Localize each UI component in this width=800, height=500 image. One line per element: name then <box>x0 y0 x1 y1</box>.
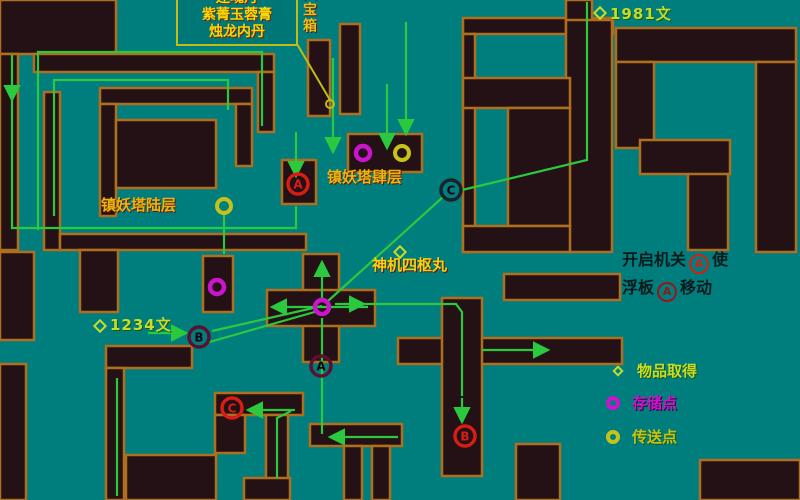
legend-item-obtained: 物品取得 <box>611 360 697 381</box>
annotation-line: 烛龙内丹 <box>209 24 265 41</box>
item-annotation-box: 还魂丹 紫菁玉蓉膏 烛龙内丹 <box>176 0 298 46</box>
maze-wall <box>0 0 116 54</box>
legend-teleport-point: 传送点 <box>606 426 677 447</box>
money-label-1234: 1234文 <box>110 318 172 333</box>
maze-wall <box>116 120 216 188</box>
maze-wall <box>0 364 26 500</box>
instruction-text: 开启机关 <box>622 250 686 269</box>
mechanism-a-badge: A <box>689 254 709 274</box>
marker-letter-C: C <box>447 184 456 198</box>
maze-wall <box>44 92 60 250</box>
maze-wall <box>100 88 252 104</box>
teleport-circle-icon <box>606 430 620 444</box>
maze-wall <box>0 54 18 250</box>
maze-wall <box>640 140 730 174</box>
board-a-badge: A <box>657 282 677 302</box>
maze-wall <box>340 24 360 114</box>
marker-letter-A: A <box>316 360 326 374</box>
item-marker <box>94 320 105 331</box>
instruction-text: 移动 <box>680 278 712 297</box>
maze-wall <box>258 72 274 132</box>
annotation-line: 还魂丹 <box>216 0 258 7</box>
annotation-line: 紫菁玉蓉膏 <box>202 7 272 24</box>
tower-floor6-label: 镇妖塔陆层 <box>101 198 176 213</box>
marker-letter-B: B <box>460 430 469 444</box>
game-map-screen: ABCABC 还魂丹 紫菁玉蓉膏 烛龙内丹 大宝箱 1981文 镇妖塔陆层 镇妖… <box>0 0 800 500</box>
shenji-item-label: 神机四枢丸 <box>372 258 447 273</box>
maze-wall <box>700 460 800 500</box>
maze-wall <box>236 104 252 166</box>
maze-wall <box>310 424 402 446</box>
maze-wall <box>0 252 34 340</box>
maze-wall <box>463 34 475 252</box>
maze-wall <box>566 20 612 252</box>
teleport-point <box>217 199 231 213</box>
maze-wall <box>80 250 118 312</box>
tower-floor4-label: 镇妖塔肆层 <box>327 170 402 185</box>
maze-wall <box>463 78 570 108</box>
maze-wall <box>372 446 390 500</box>
chest-label: 大宝箱 <box>300 0 318 34</box>
maze-wall <box>215 415 245 453</box>
marker-letter-C: C <box>228 402 237 416</box>
route-path <box>328 197 443 301</box>
maze-wall <box>203 256 233 312</box>
maze-wall <box>34 54 274 72</box>
maze-wall <box>126 455 216 500</box>
instruction-text: 使 <box>712 250 728 269</box>
marker-letter-A: A <box>293 178 303 192</box>
legend-save-point: 存储点 <box>606 392 677 413</box>
instruction-line-1: 开启机关A使 <box>622 246 728 274</box>
item-diamond-icon <box>612 365 623 376</box>
instruction-line-2: 浮板A移动 <box>622 274 712 302</box>
maze-wall <box>516 444 560 500</box>
maze-wall <box>504 274 620 300</box>
maze-wall <box>616 62 654 148</box>
maze-wall <box>106 368 124 500</box>
maze-wall <box>756 62 796 252</box>
maze-wall <box>60 234 306 250</box>
instruction-text: 浮板 <box>622 278 654 297</box>
maze-wall <box>244 478 290 500</box>
money-label-1981: 1981文 <box>610 7 672 22</box>
legend-label: 传送点 <box>632 426 677 447</box>
maze-wall <box>463 226 570 252</box>
legend-label: 物品取得 <box>637 360 697 381</box>
maze-wall <box>106 346 192 368</box>
legend-label: 存储点 <box>632 392 677 413</box>
marker-letter-B: B <box>194 331 203 345</box>
maze-wall <box>616 28 796 62</box>
save-circle-icon <box>606 396 620 410</box>
maze-wall <box>344 446 362 500</box>
